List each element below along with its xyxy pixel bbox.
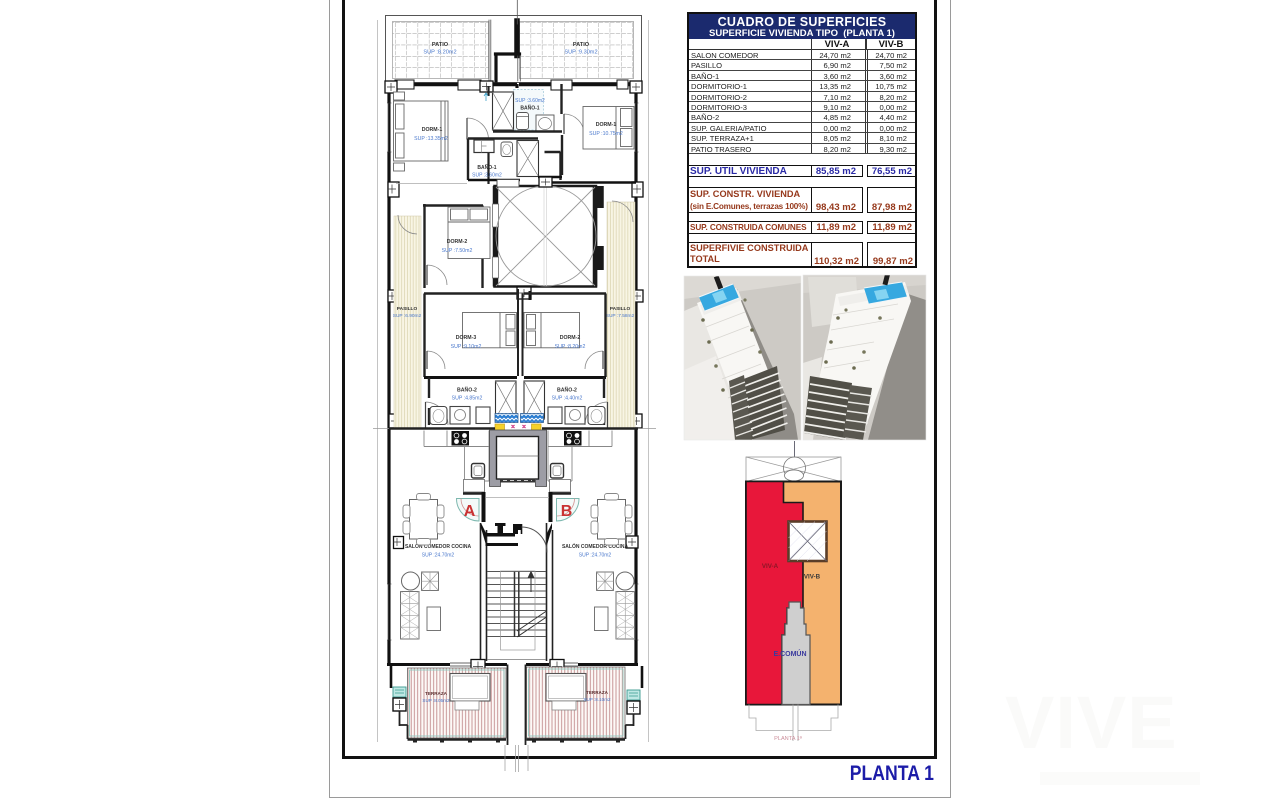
svg-text:B: B bbox=[561, 503, 573, 520]
svg-text:PATIO: PATIO bbox=[573, 42, 590, 48]
svg-text:TERRAZA: TERRAZA bbox=[425, 691, 448, 696]
svg-text:SUP :8.10m2: SUP :8.10m2 bbox=[583, 697, 611, 702]
svg-text:SUP :3.60m2: SUP :3.60m2 bbox=[515, 98, 545, 104]
svg-text:PASILLO: PASILLO bbox=[397, 306, 418, 312]
svg-text:SUP :8.20m2: SUP :8.20m2 bbox=[423, 50, 456, 56]
svg-text:SALÓN COMEDOR COCINA: SALÓN COMEDOR COCINA bbox=[405, 542, 472, 550]
svg-text:DORM-1: DORM-1 bbox=[422, 127, 443, 133]
svg-text:DORM-2: DORM-2 bbox=[560, 335, 581, 341]
svg-text:DORM-2: DORM-2 bbox=[447, 239, 468, 245]
svg-text:SUP :13.35m2: SUP :13.35m2 bbox=[414, 136, 448, 142]
svg-text:BAÑO-1: BAÑO-1 bbox=[477, 164, 496, 171]
svg-text:SUP :8.20m2: SUP :8.20m2 bbox=[555, 344, 586, 350]
svg-text:BAÑO-1: BAÑO-1 bbox=[520, 105, 539, 112]
svg-text:SUP :8.05m2: SUP :8.05m2 bbox=[422, 698, 450, 703]
svg-text:BAÑO-2: BAÑO-2 bbox=[457, 387, 477, 394]
svg-text:DORM-3: DORM-3 bbox=[456, 335, 477, 341]
svg-text:VIV-A: VIV-A bbox=[762, 563, 779, 570]
svg-text:SUP :7.58m2: SUP :7.58m2 bbox=[606, 313, 635, 319]
svg-text:SUP :9.30m2: SUP :9.30m2 bbox=[564, 50, 597, 56]
svg-text:SUP :24.70m2: SUP :24.70m2 bbox=[579, 553, 612, 559]
svg-text:TERRAZA: TERRAZA bbox=[586, 690, 609, 695]
svg-text:SUP :9.10m2: SUP :9.10m2 bbox=[451, 344, 482, 350]
svg-text:SUP :24.70m2: SUP :24.70m2 bbox=[422, 553, 455, 559]
svg-text:SUP :6.90m2: SUP :6.90m2 bbox=[393, 313, 422, 319]
svg-text:SUP :3.60m2: SUP :3.60m2 bbox=[472, 173, 502, 179]
svg-text:PLANTA 1ª: PLANTA 1ª bbox=[774, 735, 803, 742]
svg-text:SUP :4.85m2: SUP :4.85m2 bbox=[452, 396, 483, 402]
svg-text:PATIO: PATIO bbox=[432, 42, 449, 48]
svg-text:SUP :4.40m2: SUP :4.40m2 bbox=[552, 396, 583, 402]
svg-text:DORM-1: DORM-1 bbox=[596, 122, 617, 128]
svg-text:SUP :7.50m2: SUP :7.50m2 bbox=[442, 248, 473, 254]
svg-text:VIV-B: VIV-B bbox=[804, 574, 821, 581]
svg-text:E.COMÚN: E.COMÚN bbox=[773, 649, 806, 658]
svg-text:BAÑO-2: BAÑO-2 bbox=[557, 387, 577, 394]
svg-text:SUP :10.75m2: SUP :10.75m2 bbox=[589, 131, 623, 137]
svg-text:A: A bbox=[464, 503, 476, 520]
svg-text:PASILLO: PASILLO bbox=[610, 306, 631, 312]
